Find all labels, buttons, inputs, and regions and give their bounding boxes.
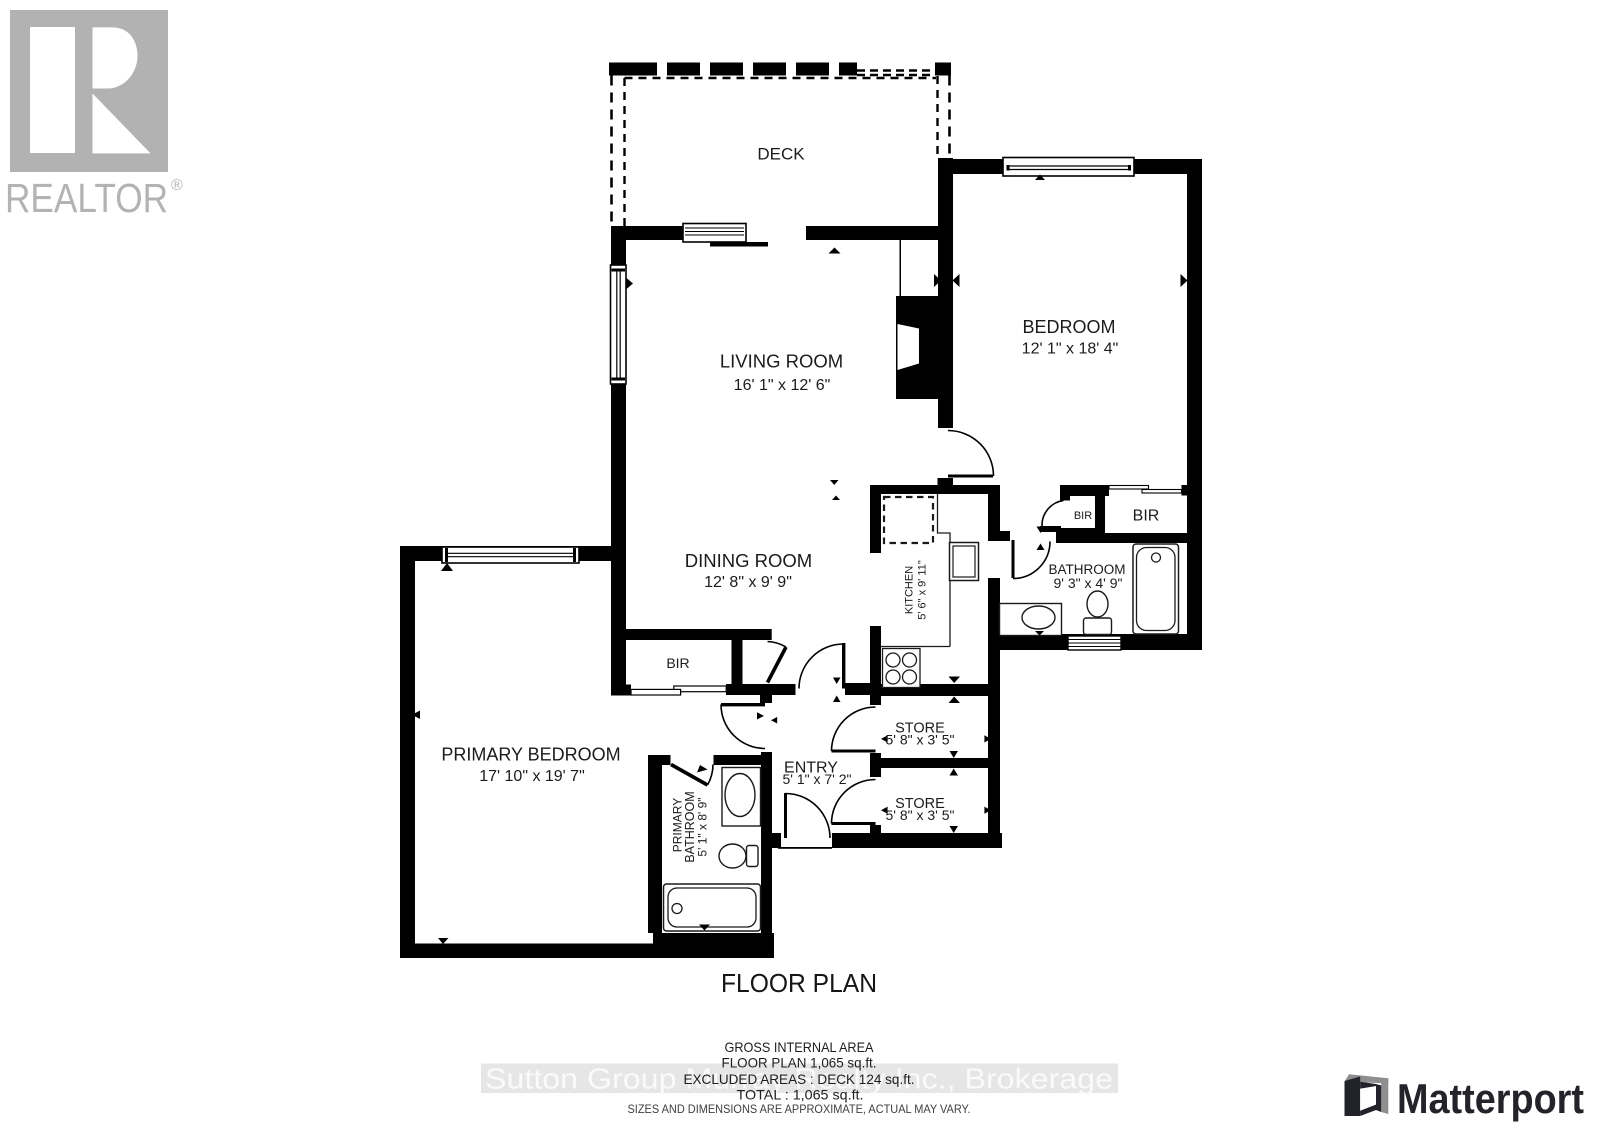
svg-text:Matterport: Matterport (1397, 1075, 1584, 1122)
svg-text:12' 1" x 18' 4": 12' 1" x 18' 4" (1022, 341, 1119, 358)
svg-text:12' 8" x 9' 9": 12' 8" x 9' 9" (704, 574, 792, 591)
svg-text:LIVING ROOM: LIVING ROOM (720, 351, 843, 372)
svg-text:BIR: BIR (666, 655, 689, 671)
svg-text:9' 3" x 4' 9": 9' 3" x 4' 9" (1054, 575, 1123, 591)
svg-text:BIR: BIR (1074, 510, 1092, 522)
svg-text:GROSS INTERNAL AREA: GROSS INTERNAL AREA (725, 1039, 875, 1055)
svg-text:DECK: DECK (757, 145, 805, 164)
svg-text:DINING ROOM: DINING ROOM (685, 550, 812, 571)
svg-text:5' 6" x 9' 11": 5' 6" x 9' 11" (917, 560, 929, 620)
svg-text:FLOOR PLAN 1,065 sq.ft.: FLOOR PLAN 1,065 sq.ft. (722, 1055, 877, 1071)
svg-text:®: ® (171, 177, 183, 194)
svg-text:5' 8" x 3' 5": 5' 8" x 3' 5" (886, 732, 955, 748)
svg-text:5' 1" x 7' 2": 5' 1" x 7' 2" (783, 771, 852, 787)
svg-text:REALTOR: REALTOR (5, 175, 168, 221)
svg-text:5' 1" x 8' 9": 5' 1" x 8' 9" (696, 797, 710, 856)
svg-text:TOTAL : 1,065 sq.ft.: TOTAL : 1,065 sq.ft. (737, 1087, 864, 1103)
svg-text:BEDROOM: BEDROOM (1022, 317, 1115, 337)
svg-text:EXCLUDED AREAS : DECK 124 sq.: EXCLUDED AREAS : DECK 124 sq.ft. (684, 1071, 915, 1087)
svg-text:16' 1" x 12' 6": 16' 1" x 12' 6" (734, 377, 831, 394)
svg-text:FLOOR PLAN: FLOOR PLAN (721, 968, 877, 998)
svg-text:KITCHEN: KITCHEN (904, 566, 916, 614)
svg-text:5' 8" x 3' 5": 5' 8" x 3' 5" (886, 807, 955, 823)
svg-text:SIZES AND DIMENSIONS ARE APPRO: SIZES AND DIMENSIONS ARE APPROXIMATE, AC… (628, 1104, 971, 1116)
svg-text:PRIMARY BEDROOM: PRIMARY BEDROOM (441, 745, 620, 765)
svg-text:BIR: BIR (1133, 508, 1160, 525)
svg-text:17' 10" x 19' 7": 17' 10" x 19' 7" (479, 768, 585, 785)
